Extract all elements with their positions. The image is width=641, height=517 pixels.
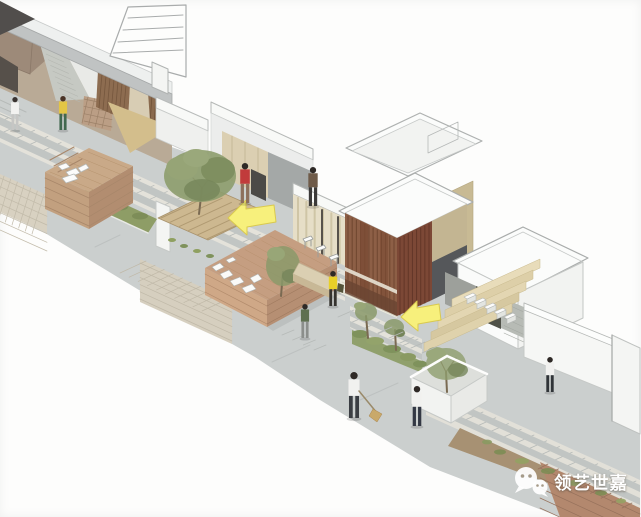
sweeper-person-leg — [349, 396, 353, 418]
pedestrian-white-right-torso — [546, 363, 554, 376]
pedestrian-red-jacket-shadow — [239, 202, 252, 206]
cobble-grid — [0, 230, 47, 251]
grass-tuft — [616, 499, 626, 504]
pedestrian-yellow-coat-leg — [329, 289, 332, 306]
sweeper-person-head — [350, 372, 357, 379]
pedestrian-white-center-leg — [418, 407, 421, 426]
watermark-text: 领艺世嘉 — [554, 470, 628, 495]
pedestrian-red-jacket-torso — [240, 169, 250, 183]
grass-tuft — [206, 254, 214, 258]
pedestrian-yellow-coat-shadow — [327, 305, 338, 308]
shrub — [383, 345, 401, 353]
pedestrian-green-jacket-leg — [306, 322, 309, 338]
terrace-tree-canopy — [267, 247, 285, 261]
right-fin-wall — [612, 335, 640, 434]
shrub — [400, 353, 416, 361]
pedestrian-white-right-shadow — [544, 391, 555, 394]
pedestrian-yellow-left-torso — [59, 101, 67, 113]
pedestrian-green-jacket-head — [302, 304, 307, 309]
pedestrian-yellow-left-leg — [64, 114, 67, 130]
street-tree-large-canopy — [184, 179, 220, 201]
street-renovation-scene — [0, 0, 641, 517]
pedestrian-green-jacket-shadow — [300, 337, 311, 340]
shrub — [352, 330, 368, 338]
grass-tuft — [494, 449, 506, 454]
pedestrian-brown-jacket-leg — [314, 187, 317, 206]
pedestrian-red-jacket-leg — [246, 184, 249, 203]
pedestrian-yellow-left-head — [60, 96, 65, 101]
pedestrian-green-jacket-torso — [301, 309, 309, 321]
grass-tuft — [168, 238, 176, 242]
pedestrian-yellow-coat-leg — [334, 289, 337, 306]
pedestrian-white-center-shadow — [411, 425, 424, 429]
pedestrian-brown-jacket-leg — [309, 187, 312, 206]
pedestrian-white-right-head — [547, 357, 553, 363]
pedestrian-green-jacket-leg — [301, 322, 304, 338]
sweeper-person-leg — [355, 396, 359, 418]
grass-tuft — [515, 458, 529, 464]
back-building-interior — [352, 119, 476, 173]
pedestrian-white-right-leg — [546, 375, 549, 392]
pedestrian-brown-jacket-head — [310, 167, 316, 173]
sweeper-person-shadow — [347, 417, 362, 421]
pedestrian-brown-jacket-torso — [308, 173, 317, 187]
pedestrian-red-jacket-head — [242, 163, 248, 169]
pedestrian-yellow-left-shadow — [58, 129, 69, 132]
pedestrian-white-center-torso — [412, 392, 422, 406]
grass-tuft — [180, 244, 188, 248]
pedestrian-brown-jacket-shadow — [307, 205, 319, 209]
hedge-shade — [132, 213, 148, 220]
pedestrian-white-left-leg — [16, 114, 19, 130]
deck-curb-wall — [156, 201, 170, 252]
pedestrian-white-left-shadow — [10, 130, 21, 133]
sweeper-person-torso — [348, 379, 359, 396]
shrub — [413, 361, 427, 368]
grass-tuft — [482, 440, 492, 445]
pedestrian-white-left-head — [12, 97, 17, 102]
wechat-watermark: 领艺世嘉 — [513, 466, 628, 499]
pedestrian-white-center-leg — [413, 407, 416, 426]
street-tree-large-canopy — [183, 149, 209, 167]
pedestrian-yellow-coat-head — [330, 271, 336, 277]
strip-tree-canopy — [354, 302, 366, 310]
pedestrian-yellow-coat-torso — [329, 277, 337, 290]
wechat-logo-icon — [513, 466, 549, 499]
pedestrian-yellow-left-leg — [59, 114, 62, 130]
pedestrian-white-right-leg — [551, 375, 554, 392]
pedestrian-white-left-leg — [12, 114, 15, 130]
pedestrian-white-center-head — [414, 386, 420, 392]
grass-tuft — [193, 249, 201, 253]
pedestrian-red-jacket-leg — [241, 184, 244, 203]
architectural-axonometric-illustration: 领艺世嘉 — [0, 0, 641, 517]
pedestrian-white-left-torso — [11, 102, 19, 114]
